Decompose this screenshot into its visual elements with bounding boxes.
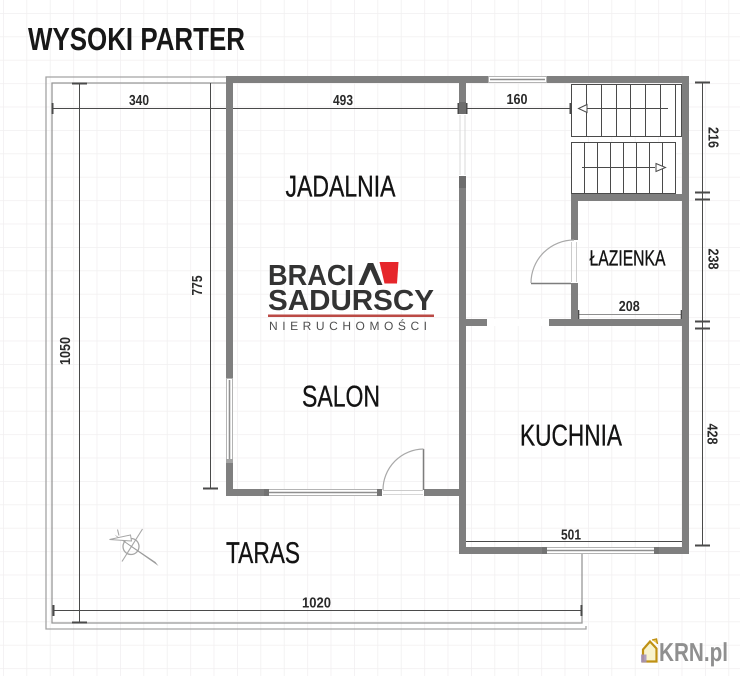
svg-text:TARAS: TARAS — [226, 537, 300, 570]
svg-text:ŁAZIENKA: ŁAZIENKA — [590, 246, 666, 271]
svg-text:340: 340 — [129, 93, 149, 109]
svg-text:JADALNIA: JADALNIA — [286, 171, 396, 204]
svg-text:208: 208 — [619, 299, 640, 315]
svg-text:NIERUCHOMOŚCI: NIERUCHOMOŚCI — [269, 319, 433, 333]
svg-text:1020: 1020 — [302, 596, 331, 612]
svg-text:SALON: SALON — [302, 381, 380, 414]
svg-text:428: 428 — [704, 424, 720, 445]
svg-text:216: 216 — [705, 127, 721, 148]
svg-text:775: 775 — [190, 276, 206, 296]
svg-text:493: 493 — [333, 93, 353, 109]
svg-text:1050: 1050 — [58, 337, 74, 365]
svg-text:KUCHNIA: KUCHNIA — [520, 420, 622, 453]
svg-text:501: 501 — [561, 528, 581, 544]
svg-text:160: 160 — [507, 92, 528, 108]
svg-text:WYSOKI PARTER: WYSOKI PARTER — [28, 21, 245, 57]
svg-text:KRN.pl: KRN.pl — [659, 637, 728, 667]
svg-text:238: 238 — [705, 249, 721, 270]
svg-text:SADURSCY: SADURSCY — [268, 285, 434, 317]
